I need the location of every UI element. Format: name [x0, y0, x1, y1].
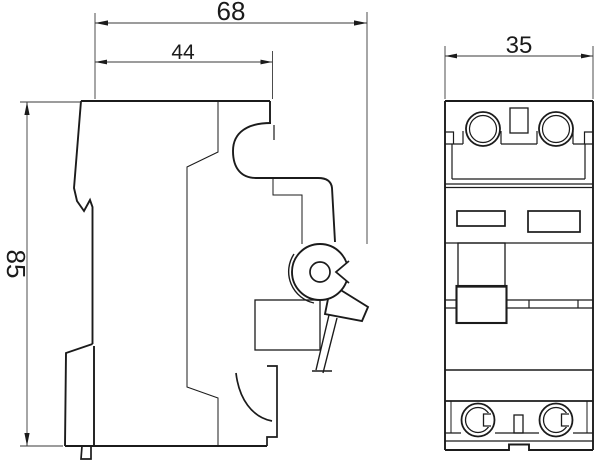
- arrowhead: [24, 102, 29, 115]
- din-release-tab: [81, 446, 91, 459]
- toggle-handle-front: [457, 286, 507, 323]
- screw-slot-mask-left: [483, 413, 492, 427]
- dimension-label-85: 85: [1, 250, 31, 279]
- dimension-label-68: 68: [217, 0, 246, 26]
- din-clip-top: [74, 101, 93, 344]
- terminal-hook-bottom: [236, 373, 272, 421]
- edge-notch-left: [445, 132, 454, 144]
- top-busbar-slot: [510, 108, 528, 133]
- front-bottom-edge-notched: [445, 445, 593, 451]
- terminal-hook-top: [233, 123, 335, 242]
- side-label-window: [255, 300, 320, 350]
- front-view: [445, 101, 593, 450]
- screw-slot-mask-right: [561, 413, 570, 427]
- label-window-right: [528, 211, 580, 232]
- drawing-canvas: 68 44 35 85: [0, 0, 600, 468]
- arrowhead: [95, 20, 108, 25]
- arrowhead: [581, 54, 593, 59]
- dimensions: [20, 12, 593, 446]
- arrowhead: [445, 54, 457, 59]
- dimension-label-44: 44: [171, 41, 195, 64]
- handle-guide-band: [445, 300, 593, 308]
- side-internal-profile: [187, 102, 218, 445]
- hook-underside-step: [273, 178, 302, 244]
- dimension-label-35: 35: [506, 32, 533, 59]
- toggle-hub: [310, 262, 330, 282]
- side-bottom-right-edge: [267, 366, 277, 446]
- terminal-screw-top-right: [539, 112, 573, 146]
- arrowhead: [261, 60, 273, 65]
- side-view: [65, 101, 368, 459]
- arrowhead: [24, 433, 29, 446]
- front-outline: [445, 101, 593, 450]
- bottom-busbar-slot: [514, 415, 523, 433]
- extension-lines: [20, 12, 593, 446]
- toggle-recess-front: [458, 243, 505, 287]
- terminal-screw-top-left: [466, 112, 500, 146]
- edge-notch-right: [585, 132, 594, 144]
- housing-seam-lines: [445, 184, 593, 188]
- arrowhead: [95, 60, 107, 65]
- terminal-recess: [452, 144, 585, 179]
- din-clip-bottom: [65, 344, 94, 446]
- technical-drawing: 68 44 35 85: [0, 0, 600, 468]
- label-window-left: [457, 211, 505, 226]
- arrowhead: [354, 20, 367, 25]
